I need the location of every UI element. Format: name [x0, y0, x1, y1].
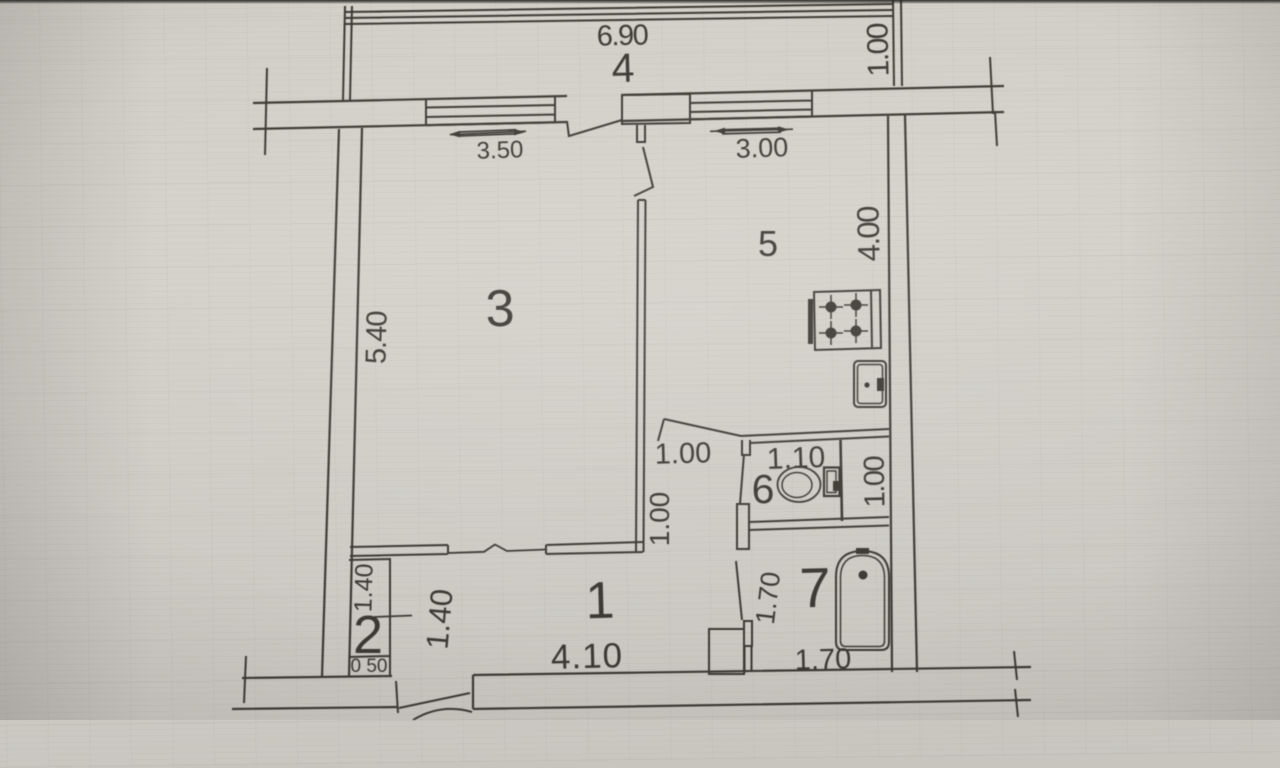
svg-text:1.00: 1.00	[644, 492, 675, 547]
svg-text:1.70: 1.70	[794, 643, 851, 676]
svg-text:3: 3	[485, 280, 515, 339]
svg-text:6: 6	[752, 466, 775, 512]
svg-text:1.10: 1.10	[766, 441, 826, 476]
svg-text:1.00: 1.00	[859, 456, 892, 507]
svg-text:4: 4	[611, 45, 635, 92]
svg-text:1: 1	[585, 572, 615, 631]
svg-text:0 50: 0 50	[351, 656, 388, 677]
svg-text:1.40: 1.40	[419, 588, 459, 651]
svg-text:1.00: 1.00	[654, 437, 711, 470]
svg-text:3.00: 3.00	[735, 132, 789, 164]
svg-text:4.00: 4.00	[850, 205, 886, 261]
svg-text:5: 5	[758, 223, 778, 264]
svg-text:4.10: 4.10	[550, 636, 623, 677]
svg-text:3.50: 3.50	[476, 136, 524, 165]
svg-text:5.40: 5.40	[360, 311, 393, 364]
svg-text:1.70: 1.70	[750, 570, 786, 626]
svg-text:1.00: 1.00	[861, 23, 895, 77]
svg-text:7: 7	[799, 556, 832, 620]
